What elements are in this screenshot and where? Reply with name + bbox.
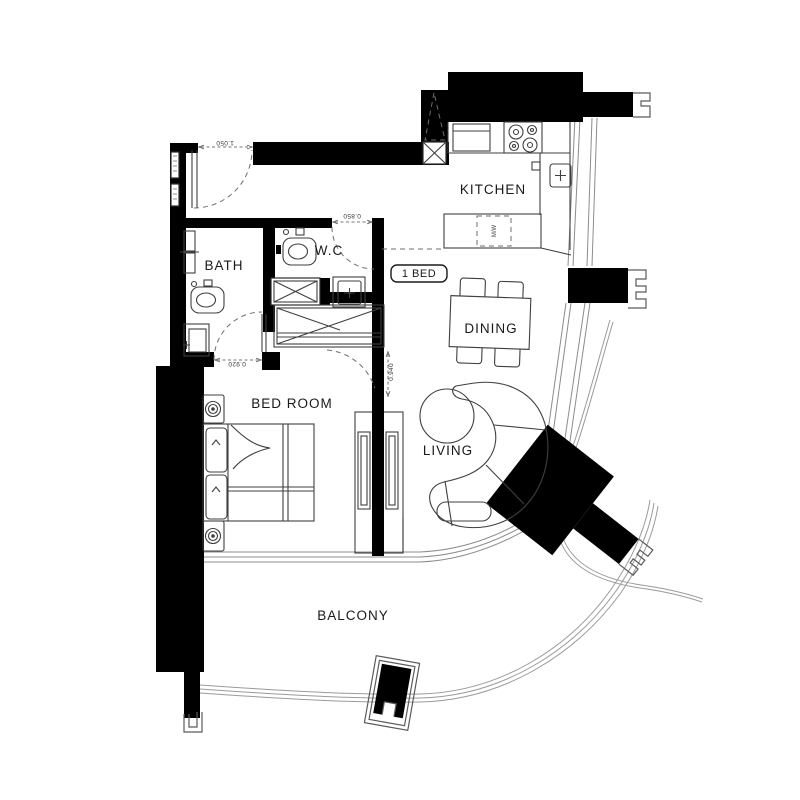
left-shear-wall bbox=[156, 366, 204, 672]
label-balcony: BALCONY bbox=[317, 608, 389, 623]
bedroom-living-wall-top bbox=[372, 388, 384, 556]
wc-toilet bbox=[276, 228, 316, 265]
stove bbox=[504, 122, 542, 153]
nightstand bbox=[203, 395, 224, 423]
label-bedroom: BED ROOM bbox=[251, 396, 333, 411]
balcony-column bbox=[364, 656, 419, 731]
middle-fin bbox=[568, 268, 628, 303]
closet bbox=[274, 305, 384, 347]
top-fin-hook bbox=[633, 93, 650, 117]
bath-shower bbox=[183, 324, 209, 356]
nightstand bbox=[203, 521, 224, 551]
label-wc: W.C bbox=[315, 243, 344, 258]
dim-bath-door: 0.920 bbox=[228, 360, 246, 367]
floor-plan-page: M/W bbox=[0, 0, 800, 800]
microwave: M/W bbox=[477, 216, 511, 246]
hall-bath-wall bbox=[180, 218, 268, 228]
bath-door-arc bbox=[214, 312, 262, 360]
floor-plan-drawing: M/W bbox=[0, 0, 800, 800]
bedroom-door-arc bbox=[327, 350, 377, 398]
kitchen-sink-cabinet bbox=[453, 124, 490, 151]
kitchen-sink bbox=[550, 164, 571, 187]
label-bath: BATH bbox=[204, 258, 243, 273]
microwave-label: M/W bbox=[492, 224, 498, 237]
label-kitchen: KITCHEN bbox=[460, 182, 526, 197]
pillow bbox=[206, 475, 227, 519]
middle-fin-hook bbox=[628, 270, 646, 308]
balcony-railing bbox=[200, 320, 703, 702]
label-living: LIVING bbox=[423, 443, 473, 458]
top-wall-band bbox=[253, 142, 449, 165]
bath-wc-divider bbox=[263, 218, 275, 332]
unit-badge-label: 1 BED bbox=[402, 268, 436, 280]
coffee-table bbox=[420, 389, 474, 443]
dim-wc-door: 0.850 bbox=[343, 212, 361, 219]
dim-entry-door: 1.050 bbox=[216, 139, 234, 146]
corner-wall-mass bbox=[486, 425, 674, 602]
shaft-x-box bbox=[271, 278, 320, 305]
bath-door-pier bbox=[262, 352, 280, 370]
bed bbox=[203, 424, 314, 521]
top-wall-mass bbox=[448, 72, 583, 122]
wc-top-wall bbox=[275, 218, 332, 228]
unit-badge: 1 BED bbox=[391, 265, 447, 282]
dim-bedroom-door: 0.940 bbox=[388, 363, 395, 381]
left-column bbox=[184, 670, 200, 718]
blanket-fold bbox=[231, 425, 270, 469]
pillow bbox=[206, 428, 227, 472]
bath-fixtures bbox=[180, 231, 266, 360]
bath-toilet bbox=[180, 280, 224, 313]
shaft-box bbox=[423, 142, 446, 164]
top-fin bbox=[583, 92, 633, 117]
wc-right-wall bbox=[372, 218, 384, 304]
label-dining: DINING bbox=[464, 321, 517, 336]
